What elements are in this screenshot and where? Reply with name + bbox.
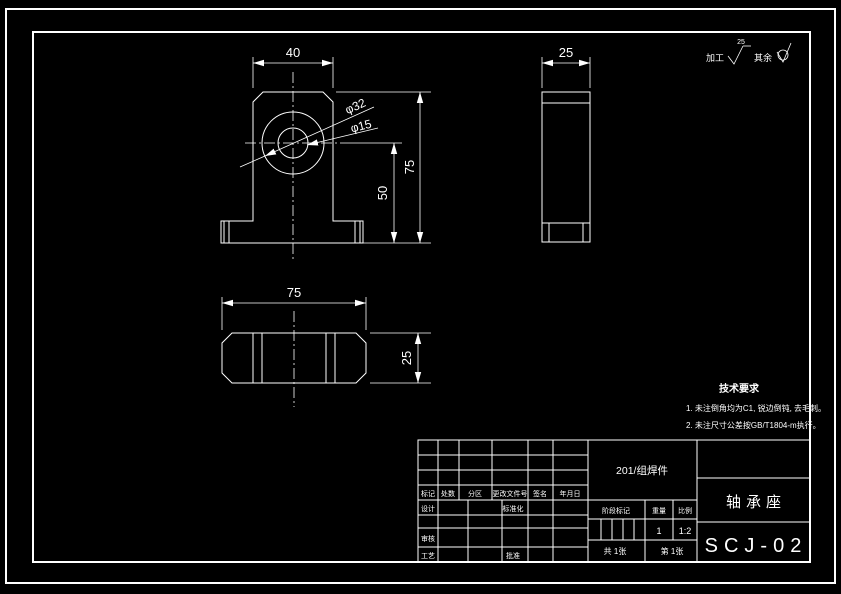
tech-req-title: 技术要求 bbox=[719, 382, 760, 395]
tech-req-item-1: 1. 未注倒角均为C1, 锐边倒钝, 去毛刺。 bbox=[686, 403, 826, 413]
tech-requirements: 技术要求 1. 未注倒角均为C1, 锐边倒钝, 去毛刺。 2. 未注尺寸公差按G… bbox=[686, 382, 826, 430]
dim-side-width: 25 bbox=[542, 45, 590, 88]
side-view: 25 bbox=[542, 45, 590, 242]
svg-text:φ32: φ32 bbox=[343, 96, 368, 118]
scale-value: 1:2 bbox=[679, 526, 692, 536]
material-field: 201/组焊件 bbox=[616, 464, 668, 477]
label-date: 年月日 bbox=[560, 489, 581, 498]
svg-text:φ15: φ15 bbox=[349, 117, 373, 136]
inner-border bbox=[33, 32, 810, 562]
svg-text:25: 25 bbox=[399, 351, 414, 365]
others-label: 其余 bbox=[754, 52, 772, 63]
dim-top-length: 75 bbox=[222, 285, 366, 330]
side-outline bbox=[542, 92, 590, 242]
sheet-no: 第 1张 bbox=[661, 546, 684, 556]
label-weight: 重量 bbox=[652, 507, 666, 515]
dim-top-depth: 25 bbox=[370, 333, 431, 383]
front-outline bbox=[221, 92, 363, 243]
label-approve: 批准 bbox=[506, 551, 520, 560]
svg-text:75: 75 bbox=[402, 160, 417, 174]
cad-drawing-canvas: 加工 25 其余 40 bbox=[0, 0, 841, 594]
part-name: 轴承座 bbox=[726, 494, 786, 511]
front-view: 40 75 50 φ32 φ15 bbox=[221, 45, 431, 262]
weight-value: 1 bbox=[656, 526, 661, 536]
svg-text:25: 25 bbox=[559, 45, 573, 60]
label-standardize: 标准化 bbox=[503, 504, 524, 513]
dim-front-center-height: 50 bbox=[345, 143, 402, 243]
title-block: 标记 处数 分区 更改文件号 签名 年月日 设计 标准化 审核 工艺 批准 20… bbox=[418, 440, 810, 562]
surface-roughness-note: 加工 25 其余 bbox=[706, 39, 791, 64]
tech-req-item-2: 2. 未注尺寸公差按GB/T1804-m执行。 bbox=[686, 420, 821, 430]
label-change-file: 更改文件号 bbox=[493, 489, 528, 498]
svg-text:40: 40 bbox=[286, 45, 300, 60]
label-zone: 分区 bbox=[468, 489, 482, 498]
label-scale: 比例 bbox=[678, 506, 692, 515]
label-check: 审核 bbox=[421, 534, 435, 543]
label-stage-mark: 阶段标记 bbox=[602, 506, 630, 515]
svg-text:50: 50 bbox=[375, 186, 390, 200]
roughness-symbol-icon bbox=[728, 46, 751, 64]
label-mark: 标记 bbox=[421, 489, 435, 498]
machined-label: 加工 bbox=[706, 53, 724, 63]
svg-text:75: 75 bbox=[287, 285, 301, 300]
label-signature: 签名 bbox=[533, 489, 547, 498]
label-design: 设计 bbox=[421, 504, 435, 513]
no-machining-symbol-icon bbox=[777, 43, 791, 62]
roughness-value: 25 bbox=[737, 39, 745, 46]
label-count: 处数 bbox=[441, 489, 455, 498]
top-view: 75 25 bbox=[222, 285, 431, 407]
sheet-total: 共 1张 bbox=[604, 547, 627, 556]
label-process: 工艺 bbox=[421, 552, 435, 560]
drawing-number: SCJ-02 bbox=[705, 535, 808, 557]
